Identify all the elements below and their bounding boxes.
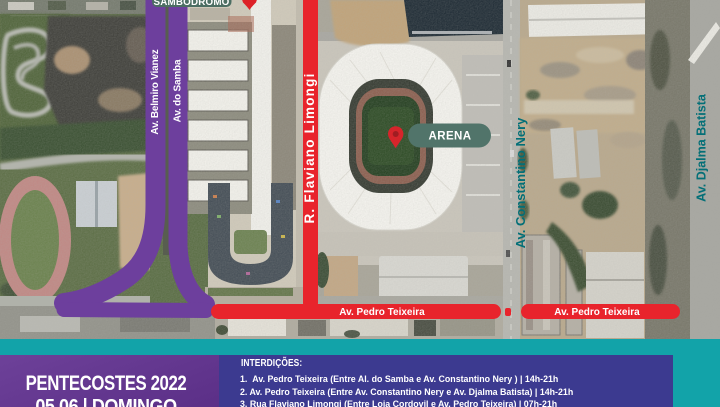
svg-text:R. Flaviano Limongi: R. Flaviano Limongi [302, 72, 317, 223]
svg-text:Av. Djalma Batista: Av. Djalma Batista [694, 93, 708, 202]
svg-text:SAMBODROMO: SAMBODROMO [153, 0, 229, 8]
svg-text:Av. do Samba: Av. do Samba [173, 59, 184, 122]
svg-text:Av. Belmiro Vianez: Av. Belmiro Vianez [150, 49, 161, 134]
svg-text:Av. Constantino Nery: Av. Constantino Nery [513, 117, 528, 249]
svg-text:ARENA: ARENA [429, 131, 472, 143]
svg-text:Av. Pedro Teixeira: Av. Pedro Teixeira [554, 307, 640, 318]
svg-text:Av. Pedro Teixeira: Av. Pedro Teixeira [339, 307, 425, 318]
